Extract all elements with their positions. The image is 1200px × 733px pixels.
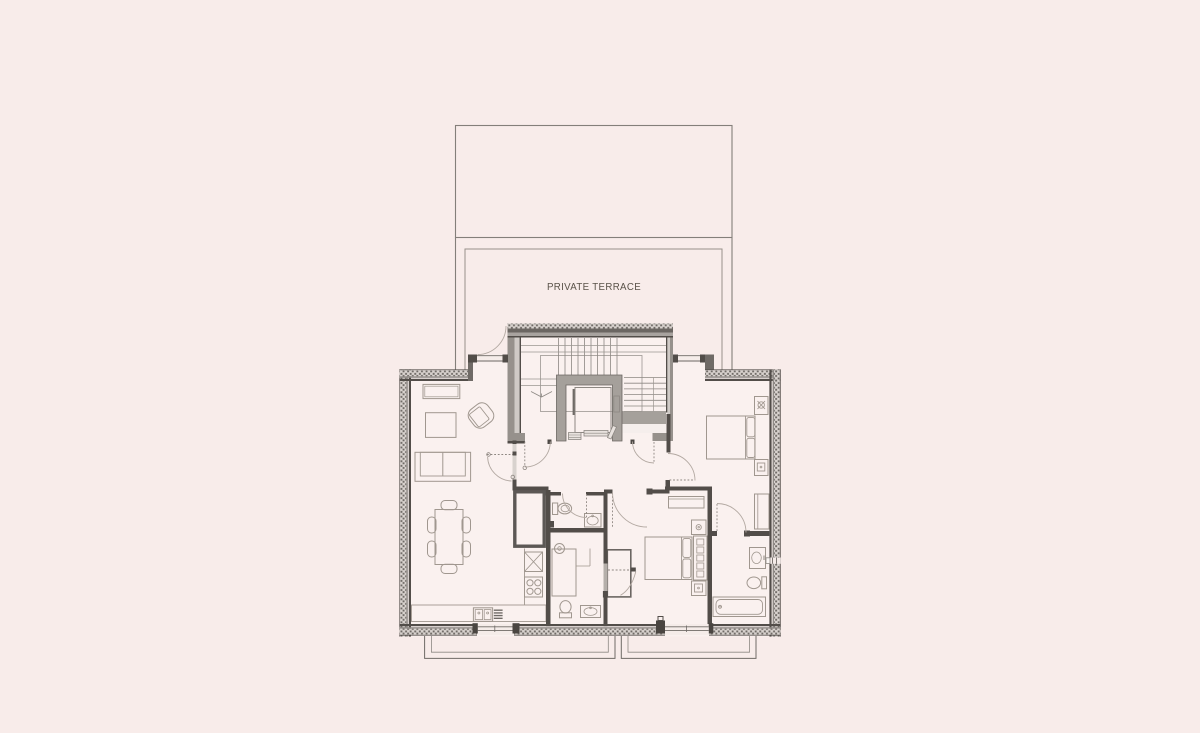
svg-text:PRIVATE TERRACE: PRIVATE TERRACE — [547, 282, 641, 293]
